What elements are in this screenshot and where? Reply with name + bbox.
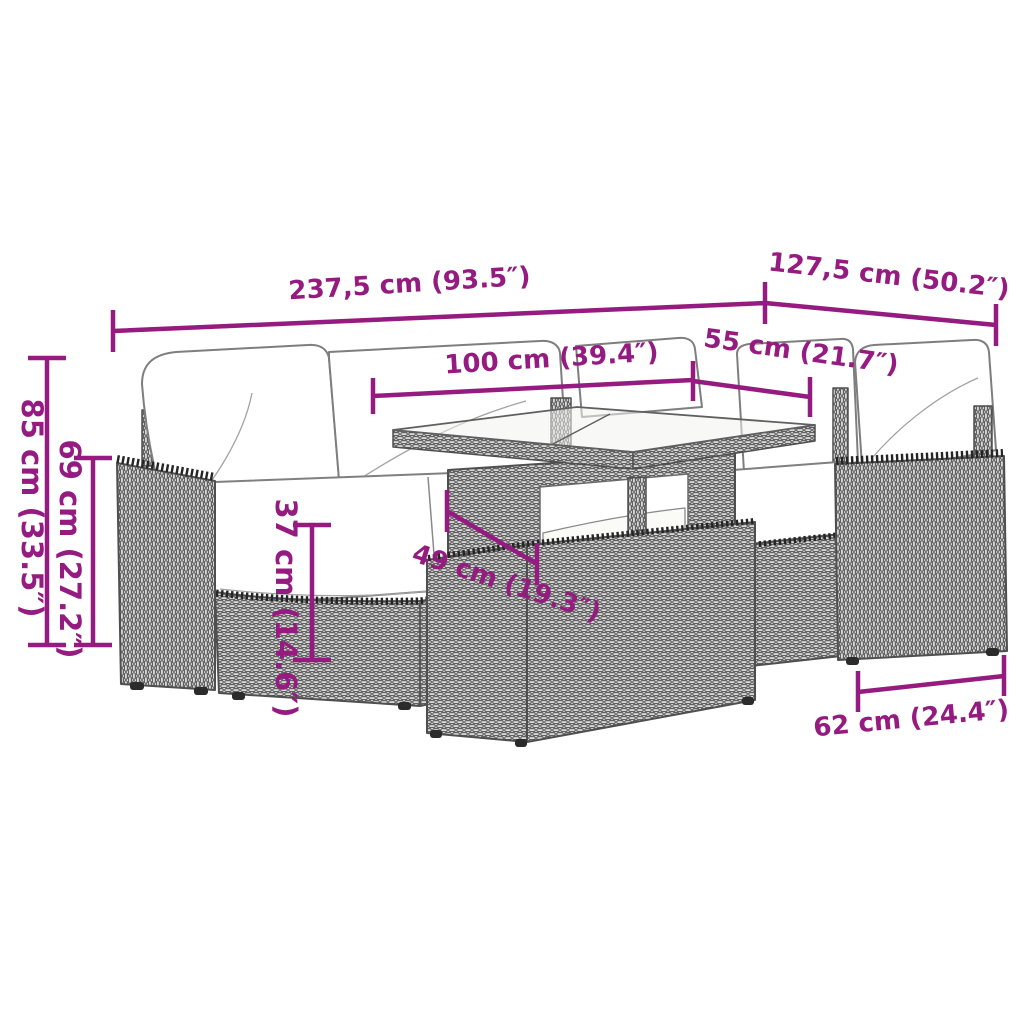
furniture-foot xyxy=(515,739,527,747)
dim-label-module-width: 62 cm (24.4″) xyxy=(812,695,1010,744)
dim-label-back-height: 85 cm (33.5″) xyxy=(15,399,49,618)
furniture-foot xyxy=(986,648,999,656)
furniture-foot xyxy=(430,730,442,738)
right-armrest xyxy=(835,456,1007,660)
dim-label-overall-width: 237,5 cm (93.5″) xyxy=(288,262,532,307)
dim-label-overall-depth: 127,5 cm (50.2″) xyxy=(767,247,1011,304)
table-lower-base-front-face xyxy=(527,522,755,742)
furniture-foot xyxy=(846,657,859,665)
furniture-dimension-diagram: 237,5 cm (93.5″) 127,5 cm (50.2″) 100 cm… xyxy=(0,0,1024,1024)
rattan-post-right-back-1 xyxy=(833,388,848,462)
dim-label-seat-height: 37 cm (14.6″) xyxy=(269,499,303,718)
furniture-foot xyxy=(232,692,245,700)
left-armrest xyxy=(117,463,215,690)
furniture-foot xyxy=(398,702,411,710)
furniture-line-art xyxy=(117,338,1007,747)
furniture-foot xyxy=(194,687,208,695)
furniture-foot xyxy=(130,682,144,690)
furniture-foot xyxy=(742,697,754,705)
dim-label-armrest-height: 69 cm (27.2″) xyxy=(53,440,87,659)
